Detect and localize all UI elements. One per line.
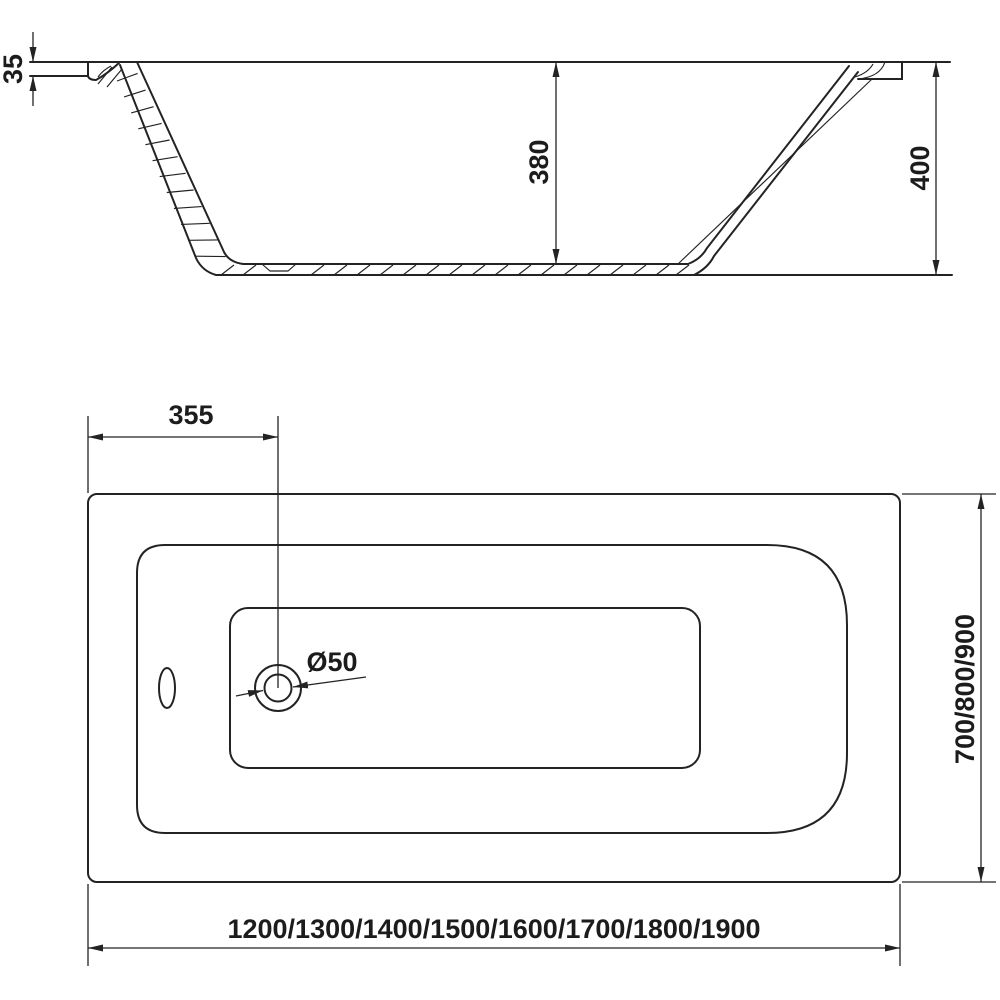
tub-rim-contour (137, 545, 847, 833)
dim-width-options: 700/800/900 (902, 494, 996, 882)
dim-rim-thickness: 35 (0, 32, 33, 106)
bottom-hatch (221, 265, 689, 275)
dim-d50-label: Ø50 (306, 647, 357, 677)
dim-overall-height: 400 (905, 62, 936, 275)
top-plan-view: 355 Ø50 700/800/900 1200/1300/1400/1500/… (88, 400, 996, 966)
tub-inner-surface (137, 62, 849, 264)
dim-35-label: 35 (0, 54, 28, 84)
tub-outer-rect (88, 494, 900, 882)
right-rim-curl-inner (855, 64, 873, 77)
dim-inner-depth: 380 (524, 62, 556, 264)
bathtub-technical-drawing: 35 380 400 355 (0, 0, 1000, 1000)
dim-length-options: 1200/1300/1400/1500/1600/1700/1800/1900 (88, 884, 900, 966)
drain-recess (262, 264, 296, 271)
dim-d50-tail (236, 691, 263, 697)
dim-d50-leader (293, 677, 366, 687)
overflow-hole (159, 668, 175, 708)
right-wall-outer (694, 72, 858, 275)
right-wall-far-edge (678, 79, 872, 264)
left-wall-hatch (98, 67, 226, 257)
dim-width-label: 700/800/900 (950, 614, 980, 764)
dim-400-label: 400 (905, 145, 935, 190)
drawing-canvas: 35 380 400 355 (0, 0, 1000, 1000)
dim-length-label: 1200/1300/1400/1500/1600/1700/1800/1900 (227, 914, 760, 944)
side-section-view: 35 380 400 (0, 32, 952, 275)
dim-355-label: 355 (168, 400, 213, 430)
dim-380-label: 380 (524, 139, 554, 184)
right-rim-curl (858, 62, 885, 79)
